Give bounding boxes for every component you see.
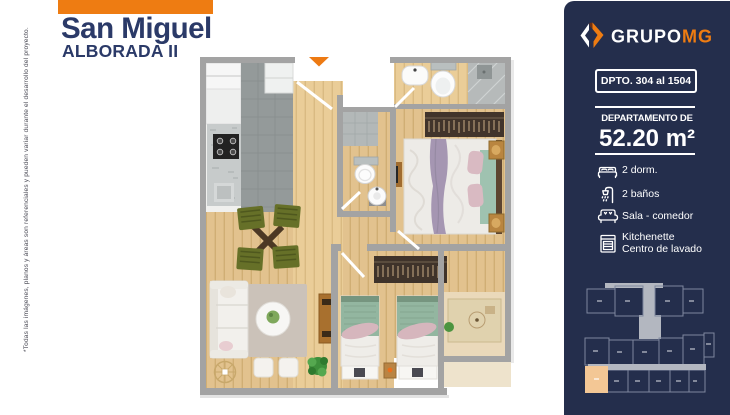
svg-text:GRUPOMG: GRUPOMG (611, 27, 713, 47)
